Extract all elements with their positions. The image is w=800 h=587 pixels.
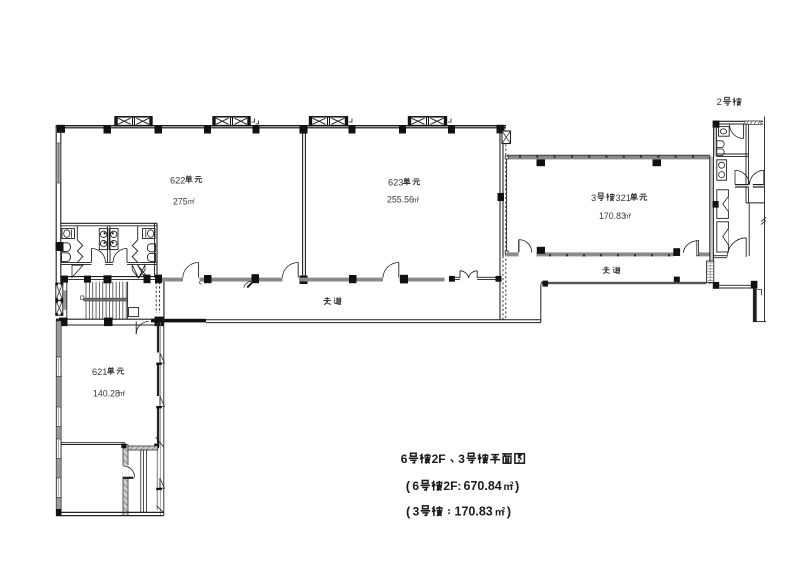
svg-text:2F:: 2F: bbox=[443, 479, 461, 493]
svg-text:140.28: 140.28 bbox=[93, 388, 120, 398]
svg-text:170.83: 170.83 bbox=[599, 211, 626, 221]
svg-text:670.84: 670.84 bbox=[464, 479, 502, 493]
svg-text:6: 6 bbox=[401, 452, 408, 466]
svg-text:2: 2 bbox=[717, 97, 722, 108]
svg-text:6: 6 bbox=[412, 479, 419, 493]
svg-text:2F: 2F bbox=[432, 452, 446, 466]
svg-text:3: 3 bbox=[591, 193, 596, 203]
svg-text:3: 3 bbox=[458, 452, 465, 466]
svg-text:(: ( bbox=[406, 504, 411, 519]
svg-text:): ) bbox=[507, 504, 511, 519]
svg-text:2: 2 bbox=[502, 506, 506, 513]
svg-text:621: 621 bbox=[92, 367, 107, 377]
svg-text:623: 623 bbox=[388, 178, 403, 188]
svg-text:2: 2 bbox=[510, 481, 514, 488]
svg-text:255.56: 255.56 bbox=[387, 195, 414, 205]
svg-text:(: ( bbox=[406, 478, 411, 493]
svg-text:): ) bbox=[515, 478, 519, 493]
svg-text:622: 622 bbox=[170, 175, 185, 185]
svg-text:321: 321 bbox=[616, 193, 631, 203]
svg-text:275: 275 bbox=[173, 196, 188, 206]
svg-text:170.83: 170.83 bbox=[455, 504, 493, 518]
svg-text:3: 3 bbox=[413, 504, 420, 518]
